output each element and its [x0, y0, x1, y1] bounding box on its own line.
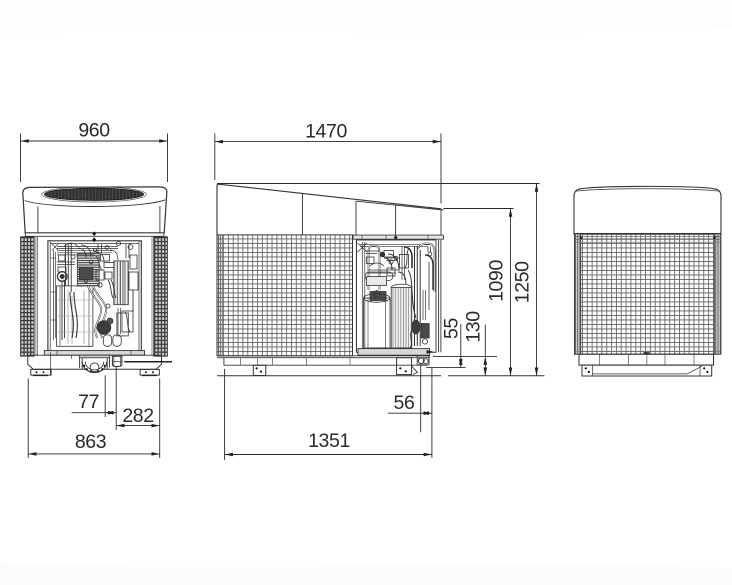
- svg-text:960: 960: [78, 120, 110, 142]
- svg-text:1351: 1351: [308, 430, 350, 452]
- svg-text:56: 56: [394, 392, 415, 414]
- svg-text:282: 282: [122, 405, 153, 427]
- svg-text:863: 863: [75, 431, 106, 453]
- svg-text:77: 77: [78, 391, 99, 413]
- svg-text:1090: 1090: [486, 260, 508, 302]
- svg-text:1250: 1250: [511, 261, 533, 303]
- svg-text:1470: 1470: [305, 121, 347, 143]
- svg-text:55: 55: [441, 318, 463, 339]
- svg-text:130: 130: [463, 311, 485, 343]
